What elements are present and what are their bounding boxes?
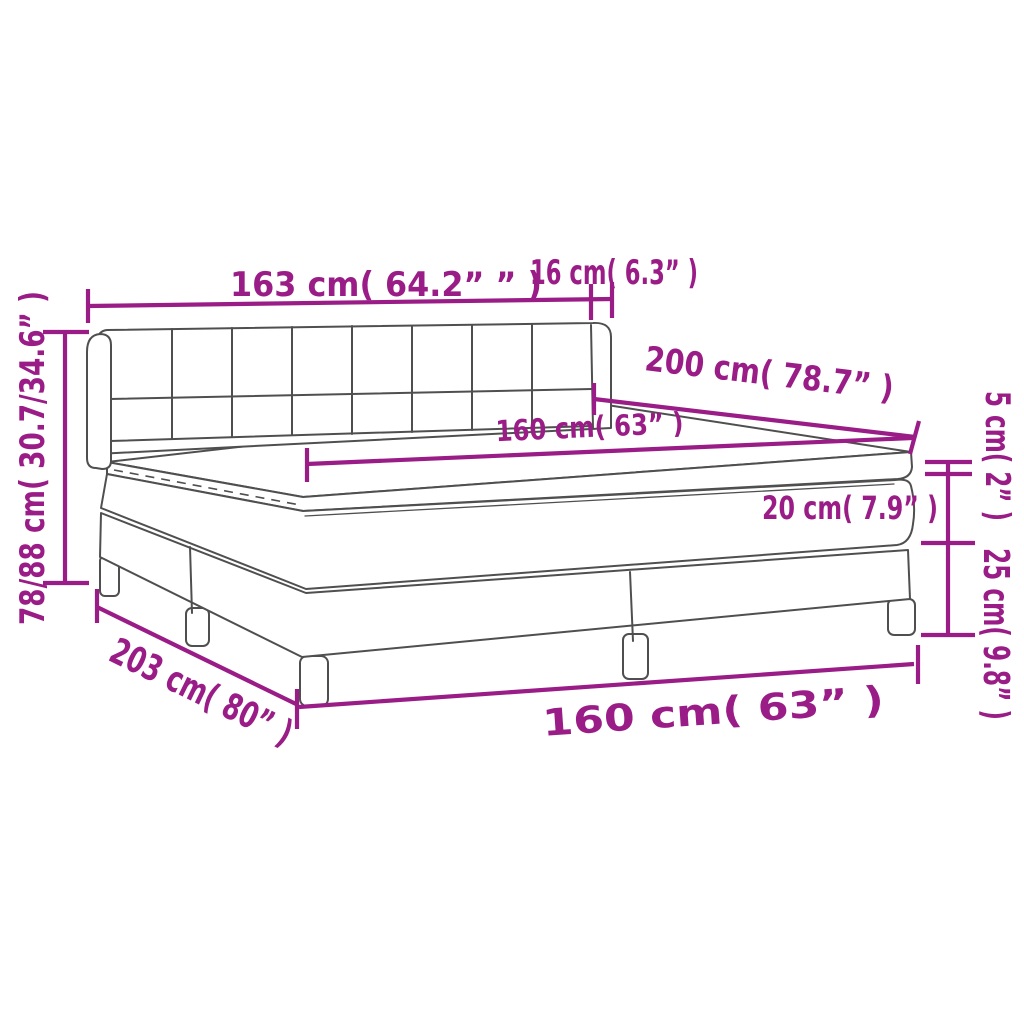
label-topper-height: 5 cm( 2” )	[977, 391, 1017, 521]
dim-height-stack	[921, 462, 975, 635]
bed-leg	[888, 599, 915, 635]
label-headboard-side: 16 cm( 6.3” )	[530, 253, 698, 293]
label-bed-length: 200 cm( 78.7” )	[643, 339, 896, 409]
label-total-height: 78/88 cm( 30.7/34.6” )	[13, 291, 53, 625]
bed-leg	[186, 608, 209, 646]
bed-dimension-diagram: 163 cm( 64.2” ” ) 16 cm( 6.3” ) 200 cm( …	[0, 0, 1024, 1024]
diagram-canvas: 163 cm( 64.2” ” ) 16 cm( 6.3” ) 200 cm( …	[0, 0, 1024, 1024]
headboard-left-wing	[87, 334, 111, 469]
bed-leg	[623, 634, 648, 679]
label-mattress-height: 20 cm( 7.9” )	[762, 489, 938, 527]
label-headboard-width: 163 cm( 64.2” ” )	[230, 265, 542, 305]
bed-leg	[300, 656, 328, 706]
label-base-height: 25 cm( 9.8” )	[975, 548, 1016, 720]
